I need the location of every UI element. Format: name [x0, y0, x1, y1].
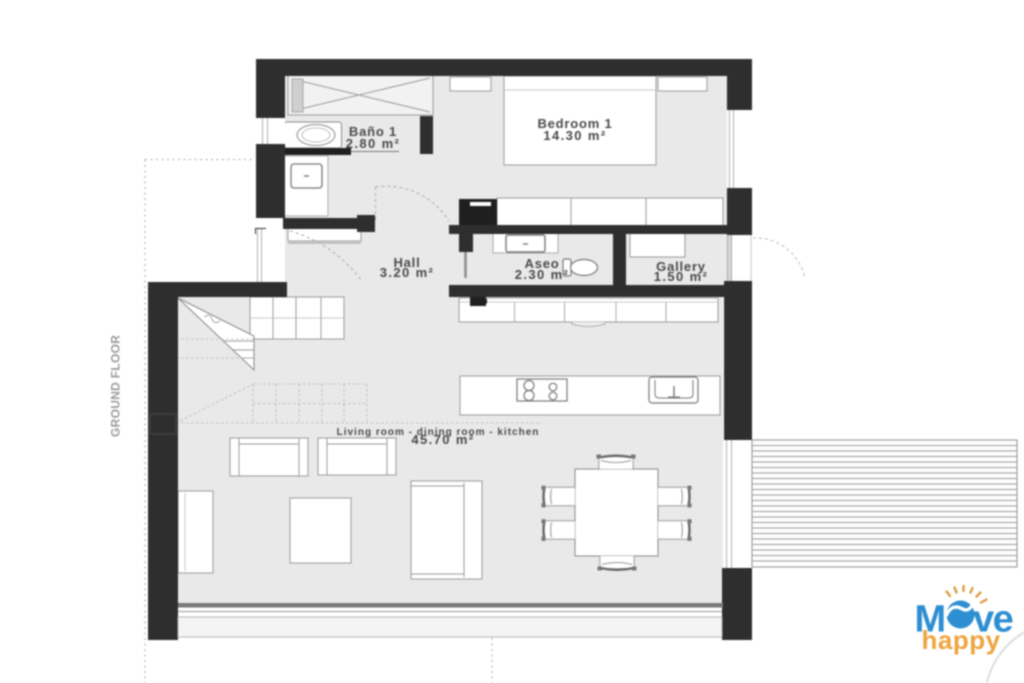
svg-text:GROUND FLOOR: GROUND FLOOR	[109, 335, 123, 437]
svg-text:14.30 m²: 14.30 m²	[543, 128, 606, 143]
svg-text:45.70 m²: 45.70 m²	[411, 432, 474, 447]
svg-text:2.30 m²: 2.30 m²	[515, 267, 570, 282]
svg-text:1.50 m²: 1.50 m²	[654, 269, 709, 284]
svg-text:2.80 m²: 2.80 m²	[346, 136, 401, 151]
svg-text:3.20 m²: 3.20 m²	[380, 265, 435, 280]
svg-text:happy: happy	[922, 625, 1001, 655]
